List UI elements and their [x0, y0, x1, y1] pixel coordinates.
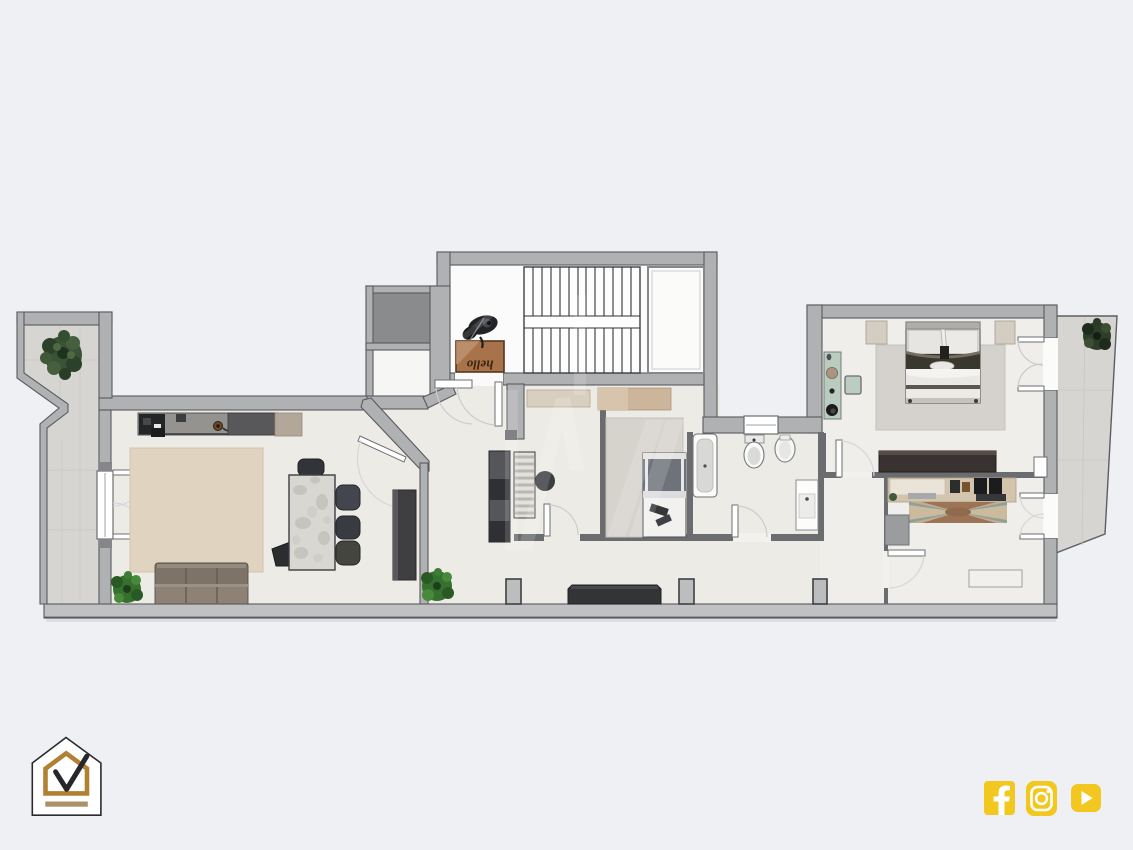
svg-text:hello: hello: [466, 358, 493, 373]
